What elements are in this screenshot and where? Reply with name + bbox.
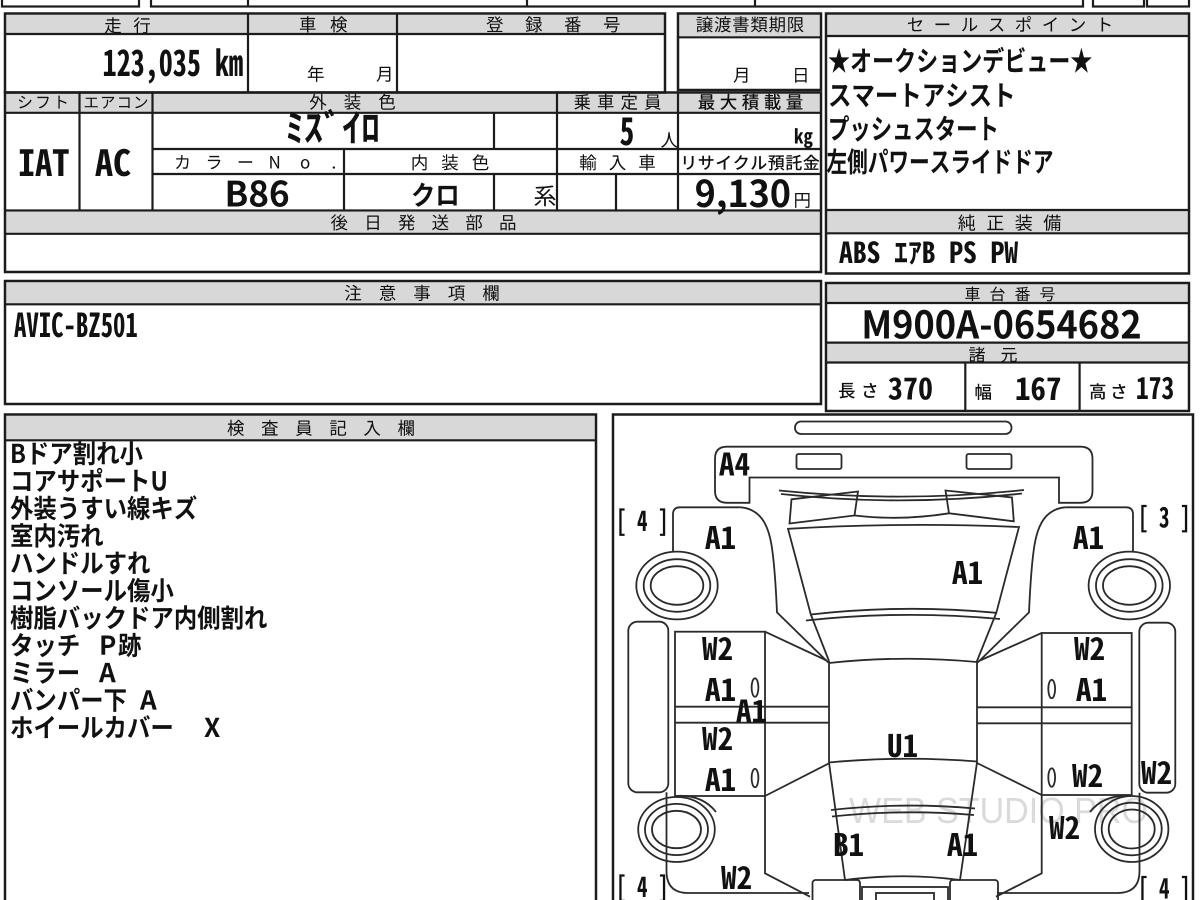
svg-text:WEB STUDIO PRO: WEB STUDIO PRO [849, 790, 1148, 831]
